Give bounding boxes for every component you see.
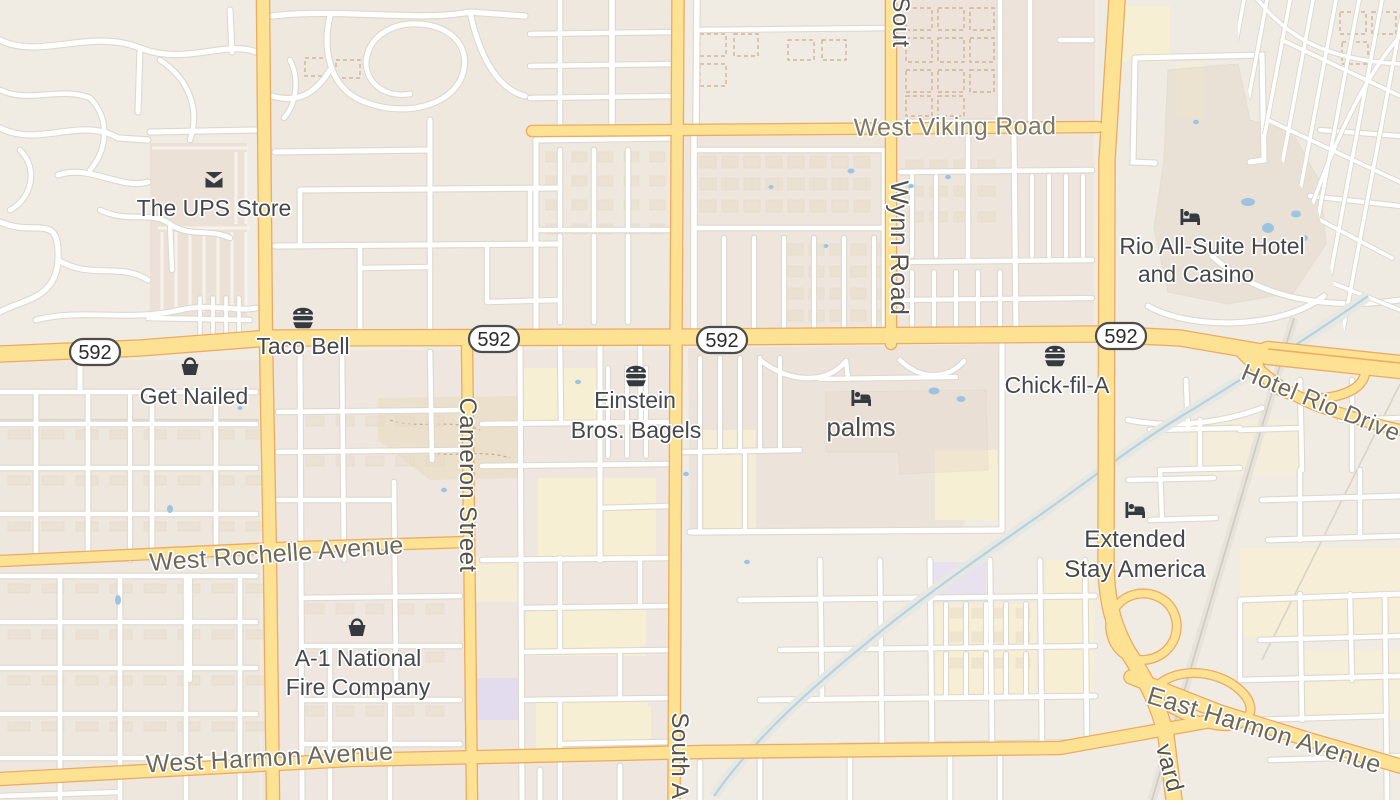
svg-text:Extended: Extended: [1084, 526, 1185, 553]
svg-text:592: 592: [78, 342, 111, 364]
svg-text:Bros. Bagels: Bros. Bagels: [571, 417, 701, 443]
svg-text:Chick-fil-A: Chick-fil-A: [1005, 372, 1110, 398]
svg-text:South Ar: South Ar: [666, 712, 693, 800]
svg-text:A-1 National: A-1 National: [295, 645, 422, 671]
svg-text:592: 592: [705, 330, 738, 352]
svg-text:Sout: Sout: [887, 0, 914, 48]
svg-text:The UPS Store: The UPS Store: [137, 195, 292, 221]
svg-text:palms: palms: [826, 412, 895, 442]
svg-text:Cameron Street: Cameron Street: [454, 397, 481, 572]
svg-text:Einstein: Einstein: [594, 387, 676, 413]
svg-text:West Viking Road: West Viking Road: [854, 112, 1057, 142]
svg-text:Get Nailed: Get Nailed: [140, 383, 249, 409]
svg-text:Rio All-Suite Hotel: Rio All-Suite Hotel: [1119, 233, 1304, 259]
svg-text:and Casino: and Casino: [1138, 261, 1254, 287]
svg-text:Taco Bell: Taco Bell: [256, 333, 349, 359]
svg-text:Stay America: Stay America: [1064, 556, 1206, 583]
svg-text:Fire Company: Fire Company: [286, 674, 431, 700]
svg-text:592: 592: [1104, 326, 1137, 348]
svg-text:Wynn Road: Wynn Road: [885, 181, 913, 316]
svg-text:592: 592: [477, 329, 510, 351]
